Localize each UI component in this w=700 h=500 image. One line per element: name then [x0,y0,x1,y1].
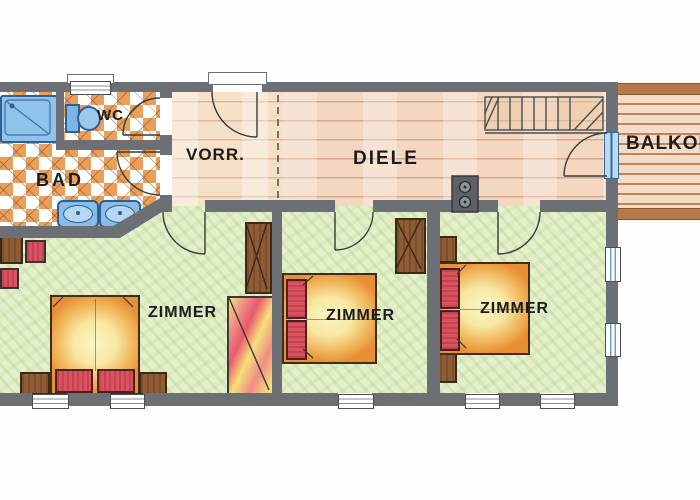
wardrobe-open [227,296,274,395]
room-label-vorraum: VORR. [186,145,245,165]
wall-top [0,82,70,92]
room-label-zimmer-right: ZIMMER [480,300,549,318]
wall-right [606,82,618,133]
window [465,394,500,409]
wc-window [70,81,111,95]
balcony-rail-bottom [618,208,700,220]
wall-bottom [498,393,540,406]
wall-top [262,82,618,92]
wall-bottom [372,393,465,406]
wardrobe [245,222,272,294]
chair [25,240,46,263]
chair [0,268,19,289]
nightstand [139,372,167,395]
wall-tub-wc [56,92,64,141]
pillow [286,320,307,360]
wall-right [606,176,618,247]
double-washbasin [57,200,141,228]
pillow [440,310,460,351]
floor-plan: WC BAD VORR. DIELE BALKON ZIMMER ZIMMER … [0,0,700,500]
balcony-door-panel [604,132,619,179]
window [540,394,575,409]
room-label-zimmer-middle: ZIMMER [326,307,395,325]
pillow [55,369,93,393]
balcony-rail-top [618,83,700,95]
room-label-balkon: BALKON [626,133,700,155]
wall-wc-south [56,140,172,150]
window [605,247,621,282]
entrance-canopy [208,72,267,85]
pillow [440,268,460,309]
pillow [286,279,307,319]
wall-bottom [67,393,110,406]
window [32,394,69,409]
window [338,394,374,409]
wall-zimmer1-2 [272,200,282,393]
bathtub [0,95,58,143]
wall-bad-vorraum [160,195,172,212]
wall-bottom [143,393,338,406]
pillow [97,369,135,393]
wall-zimmer2-3 [427,200,440,393]
toilet [65,104,99,129]
room-label-wc: WC [97,107,124,124]
window [110,394,145,409]
wall-hall-south [540,200,607,212]
room-label-zimmer-left: ZIMMER [148,304,217,322]
wall-right [606,355,618,406]
double-bed-left [50,295,140,395]
washbasin [57,200,99,228]
wardrobe [395,218,426,274]
wall-bad-vorraum [160,82,172,98]
diele-floor [283,92,607,206]
wall-bottom [0,393,32,406]
window [605,323,621,357]
nightstand [20,372,50,395]
wall-hall-south [205,200,335,212]
washbasin [99,200,141,228]
wall-right [606,280,618,323]
room-label-bad: BAD [36,170,84,191]
dresser [0,236,23,264]
room-label-diele: DIELE [353,148,419,170]
